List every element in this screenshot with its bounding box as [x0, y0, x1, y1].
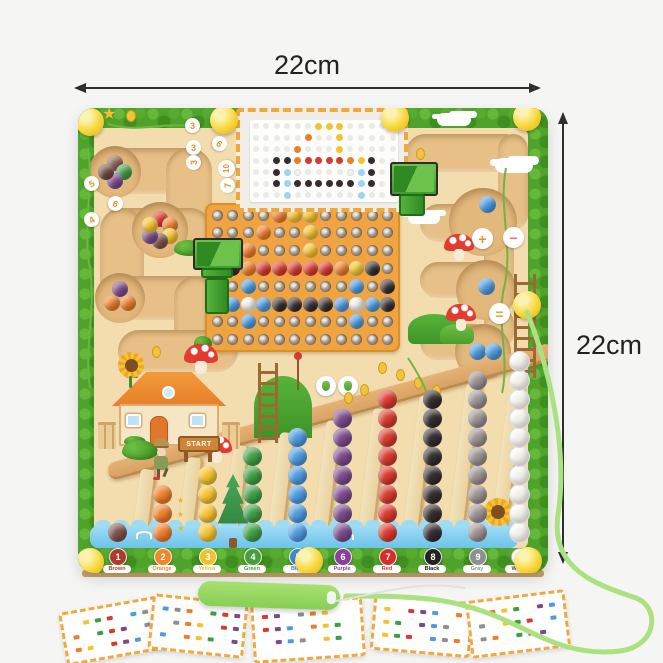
bb-inner [394, 166, 434, 192]
card-dot [305, 180, 312, 187]
column-bead [510, 390, 529, 409]
card-mark [276, 640, 282, 644]
card-mark [263, 628, 269, 632]
dimension-label-right: 22cm [576, 330, 656, 361]
corner-knob-ball [514, 547, 542, 573]
peg-bead [256, 225, 271, 240]
card-dot [273, 169, 280, 176]
card-dot [305, 134, 312, 141]
pattern-card-scattered [370, 594, 475, 659]
billboard-sign [193, 238, 243, 270]
card-dot [263, 169, 269, 175]
maze-number-bubble: 3 [186, 140, 201, 155]
peg-hole [320, 227, 331, 238]
card-dot [337, 169, 343, 175]
card-mark [231, 640, 237, 645]
peg-hole [367, 281, 378, 292]
peg-hole [258, 316, 269, 327]
card-dot [273, 157, 280, 164]
card-mark [456, 613, 462, 618]
column-bead [423, 523, 442, 542]
card-dot [326, 169, 332, 175]
column-bead [243, 523, 262, 542]
knob-ball [295, 547, 323, 573]
card-mark [274, 614, 280, 618]
cloud-icon [495, 158, 533, 173]
card-dot [284, 157, 291, 164]
shoe [153, 477, 160, 480]
peg-bead [318, 261, 333, 276]
column-bead [333, 447, 352, 466]
card-mark [174, 607, 180, 612]
peg-bead [365, 297, 380, 312]
card-mark [550, 615, 556, 620]
card-dot [315, 157, 322, 164]
card-mark [480, 637, 486, 642]
card-mark [443, 625, 449, 630]
maze-pocket-with-beads [89, 146, 141, 198]
card-dot [305, 192, 311, 198]
card-mark [526, 618, 532, 623]
column-bead [243, 504, 262, 523]
column-bead [468, 523, 487, 542]
peg-hole [320, 316, 331, 327]
maze-number-bubble: 7 [220, 178, 235, 193]
column-bead [510, 371, 529, 390]
card-mark [513, 607, 519, 612]
card-mark [222, 612, 228, 617]
peg-hole [258, 334, 269, 345]
card-dot [294, 146, 301, 153]
card-mark [430, 637, 436, 642]
column-bead [108, 523, 127, 542]
peg-hole [305, 281, 316, 292]
peg-hole [243, 227, 254, 238]
peg-bead [256, 261, 271, 276]
peg-hole [382, 263, 393, 274]
column-bead [198, 485, 217, 504]
column-bead [288, 466, 307, 485]
card-dot [326, 123, 333, 130]
peg-bead [380, 297, 395, 312]
coin-icon [344, 392, 353, 404]
card-dot [315, 180, 322, 187]
card-dot [326, 180, 333, 187]
column-bead [333, 523, 352, 542]
track-bead [478, 278, 495, 295]
card-mark [479, 624, 485, 629]
card-mark [262, 615, 268, 619]
mstem [212, 451, 223, 463]
peg-hole [258, 281, 269, 292]
column-color-label: Brown [103, 565, 131, 573]
column-bead [378, 485, 397, 504]
card-dot [316, 192, 322, 198]
pipe-icon [201, 268, 233, 278]
mstem [195, 361, 207, 375]
card-mark [123, 639, 130, 644]
card-dot [369, 192, 375, 198]
card-dot [263, 135, 269, 141]
coin-icon [414, 377, 423, 389]
card-mark [382, 633, 388, 638]
sign-leg [184, 452, 188, 462]
column-bead [243, 485, 262, 504]
card-mark [310, 611, 316, 615]
card-dot [263, 146, 269, 152]
dimension-label-top: 22cm [230, 50, 384, 81]
peg-hole [336, 245, 347, 256]
pbody [344, 381, 352, 391]
card-dot [274, 146, 280, 152]
column-bead [468, 485, 487, 504]
column-number-badge: 9 [469, 548, 487, 566]
column-bead [333, 504, 352, 523]
card-mark [406, 635, 412, 640]
column-bead [468, 390, 487, 409]
gable-window [162, 386, 175, 399]
column-bead [423, 428, 442, 447]
column-bead [423, 447, 442, 466]
column-bead [153, 523, 172, 542]
card-dot [263, 123, 269, 129]
card-dot [358, 157, 365, 164]
card-dot [379, 135, 385, 141]
peg-hole [227, 316, 238, 327]
column-bead [333, 466, 352, 485]
column-bead [468, 466, 487, 485]
card-mark [537, 604, 543, 609]
column-bead [198, 504, 217, 523]
card-dot [390, 146, 396, 152]
column-bead [468, 409, 487, 428]
peg-hole [336, 316, 347, 327]
arrowhead-up-icon [558, 112, 568, 124]
card-dot [347, 123, 353, 129]
track-bead [469, 343, 486, 360]
card-mark [160, 632, 166, 637]
coin-icon [126, 110, 136, 122]
peg-hole [227, 210, 238, 221]
star-icon: ★ [177, 524, 184, 533]
card-mark [184, 635, 190, 640]
card-dot [263, 181, 269, 187]
card-mark [111, 641, 118, 646]
peg-hole [320, 281, 331, 292]
card-mark [173, 620, 179, 625]
peg-hole [382, 334, 393, 345]
card-dot [336, 180, 343, 187]
column-bead [288, 428, 307, 447]
sunflower-icon [118, 352, 144, 378]
card-mark [142, 609, 149, 614]
potion-icon [316, 376, 336, 396]
peg-bead [303, 261, 318, 276]
card-dot [294, 157, 301, 164]
boy-character [150, 438, 174, 480]
peg-hole [305, 334, 316, 345]
cloud-icon [437, 113, 471, 126]
card-mark [335, 636, 341, 640]
card-dot [358, 169, 365, 176]
house-window [190, 414, 205, 427]
peg-hole [227, 334, 238, 345]
dimension-line-top [80, 87, 535, 89]
maze-number-bubble: 10 [218, 160, 235, 177]
card-dot [358, 135, 364, 141]
column-color-label: Gray [463, 565, 491, 573]
peg-hole [320, 334, 331, 345]
product-photo: 22cm 22cm [0, 0, 663, 663]
card-mark [516, 633, 522, 638]
column-bead [378, 428, 397, 447]
card-mark [335, 623, 341, 627]
start-sign: START [178, 436, 220, 452]
card-mark [515, 620, 521, 625]
column-number-badge: 4 [244, 548, 262, 566]
column-bead [243, 447, 262, 466]
column-bead [510, 523, 529, 542]
card-mark [73, 635, 80, 640]
card-dot [379, 158, 385, 164]
card-mark [221, 625, 227, 630]
coin-icon [416, 148, 425, 160]
peg-hole [305, 316, 316, 327]
card-mark [528, 631, 534, 636]
peg-bead [303, 243, 318, 258]
card-dot [253, 123, 259, 129]
card-dot [284, 192, 291, 199]
column-bead [423, 504, 442, 523]
card-dot [379, 192, 385, 198]
column-number-badge: 3 [199, 548, 217, 566]
card-mark [197, 623, 203, 628]
card-mark [130, 612, 137, 617]
track-bead [485, 343, 502, 360]
card-dot [274, 135, 280, 141]
column-bead [378, 466, 397, 485]
card-dot [368, 169, 375, 176]
column-bead [153, 485, 172, 504]
column-color-label: Yellow [193, 565, 221, 573]
card-mark [540, 630, 546, 635]
card-mark [324, 637, 330, 641]
card-dot [358, 123, 364, 129]
pattern-card-scattered [465, 589, 571, 659]
column-bead [510, 447, 529, 466]
card-dot [305, 169, 311, 175]
card-dot [379, 181, 385, 187]
card-mark [501, 608, 507, 613]
column-bead [423, 466, 442, 485]
flag-pole [297, 358, 299, 390]
column-number-badge: 2 [154, 548, 172, 566]
card-dot [358, 180, 365, 187]
peg-bead [272, 261, 287, 276]
tree-trunk [229, 538, 237, 548]
peg-bead [303, 297, 318, 312]
peg-bead [241, 279, 256, 294]
card-dot [295, 135, 301, 141]
coin-icon [378, 362, 387, 374]
card-mark [275, 627, 281, 631]
peg-bead [349, 314, 364, 329]
card-dot [390, 135, 396, 141]
math-symbol-bubble: − [503, 227, 524, 248]
billboard-sign [390, 162, 438, 196]
card-dot [347, 146, 353, 152]
sunflower-icon [484, 498, 512, 526]
card-dot [336, 123, 343, 130]
coin-icon [152, 346, 161, 358]
card-mark [298, 612, 304, 616]
peg-hole [212, 316, 223, 327]
card-dot [284, 146, 290, 152]
card-dot [253, 181, 259, 187]
card-dot [294, 180, 301, 187]
column-bead [378, 409, 397, 428]
card-mark [196, 636, 202, 641]
card-mark [322, 611, 328, 615]
card-mark [288, 639, 294, 643]
card-mark [394, 634, 400, 639]
column-bead [510, 466, 529, 485]
card-dot [369, 135, 375, 141]
wave-foam-icon [136, 531, 152, 539]
column-color-label: Purple [328, 565, 356, 573]
track-bead [479, 196, 496, 213]
arrowhead-left-icon [74, 83, 86, 93]
maze-bead [104, 295, 120, 311]
peg-hole [227, 227, 238, 238]
card-mark [76, 648, 83, 653]
peg-hole [274, 316, 285, 327]
card-mark [431, 624, 437, 629]
card-dot [253, 135, 259, 141]
coin-icon [360, 384, 369, 396]
card-mark [210, 611, 216, 616]
card-dot [253, 146, 259, 152]
peg-hole [367, 334, 378, 345]
card-dot [253, 158, 259, 164]
column-number-badge: 8 [424, 548, 442, 566]
card-mark [395, 621, 401, 626]
maze-number-bubble: 3 [185, 118, 200, 133]
column-bead [288, 504, 307, 523]
peg-bead [241, 314, 256, 329]
card-dot [284, 180, 291, 187]
card-mark [419, 623, 425, 628]
toy-board: START ★ [78, 108, 548, 573]
column-bead [423, 390, 442, 409]
mstem [454, 249, 465, 261]
card-dot [295, 123, 301, 129]
card-dot [337, 192, 343, 198]
column-number-badge: 1 [109, 548, 127, 566]
peg-hole [274, 334, 285, 345]
card-dot [253, 169, 259, 175]
bb-inner [197, 242, 239, 266]
column-bead [288, 447, 307, 466]
card-mark [121, 626, 128, 631]
card-dot [295, 192, 301, 198]
card-dot [273, 180, 280, 187]
column-bead [510, 485, 529, 504]
peg-hole [274, 245, 285, 256]
column-color-label: Black [418, 565, 446, 573]
column-bead [378, 504, 397, 523]
card-dot [369, 123, 375, 129]
card-mark [162, 606, 168, 611]
peg-hole [382, 245, 393, 256]
column-bead [378, 523, 397, 542]
card-dot [347, 135, 353, 141]
card-mark [109, 629, 116, 634]
peg-hole [336, 334, 347, 345]
peg-hole [258, 245, 269, 256]
card-dot [274, 123, 280, 129]
peg-hole [351, 245, 362, 256]
card-mark [503, 621, 509, 626]
pegboard [205, 203, 400, 352]
peg-hole [367, 227, 378, 238]
card-mark [454, 639, 460, 644]
card-mark [234, 614, 240, 619]
peg-hole [289, 227, 300, 238]
column-bead [468, 371, 487, 390]
card-dot [379, 169, 385, 175]
card-dot [316, 135, 322, 141]
corner-knob-ball [78, 548, 104, 573]
mstem [456, 319, 467, 331]
card-dot [316, 169, 322, 175]
card-dot [347, 157, 354, 164]
column-color-label: Orange [148, 565, 176, 573]
card-mark [95, 618, 102, 623]
column-color-label: Green [238, 565, 266, 573]
pipe-icon [205, 278, 229, 314]
peg-hole [289, 245, 300, 256]
card-dot [326, 157, 333, 164]
card-dot [358, 146, 364, 152]
card-mark [135, 637, 142, 642]
peg-bead [349, 297, 364, 312]
card-mark [207, 637, 213, 642]
peg-bead [303, 225, 318, 240]
column-number-badge: 6 [334, 548, 352, 566]
peg-hole [212, 227, 223, 238]
card-mark [323, 624, 329, 628]
peg-bead [287, 261, 302, 276]
column-bead [378, 447, 397, 466]
maze-bead [98, 164, 114, 180]
mcap [184, 344, 218, 363]
card-mark [287, 626, 293, 630]
card-dot [284, 135, 290, 141]
card-dot [326, 135, 332, 141]
peg-bead [349, 261, 364, 276]
maze-bead [120, 295, 136, 311]
card-dot [284, 123, 290, 129]
column-bead [333, 428, 352, 447]
card-dot [263, 192, 269, 198]
card-dot [274, 192, 280, 198]
peg-hole [289, 316, 300, 327]
card-dot [294, 169, 301, 176]
house-window [126, 414, 141, 427]
mushroom-icon [444, 234, 474, 261]
peg-bead [241, 297, 256, 312]
